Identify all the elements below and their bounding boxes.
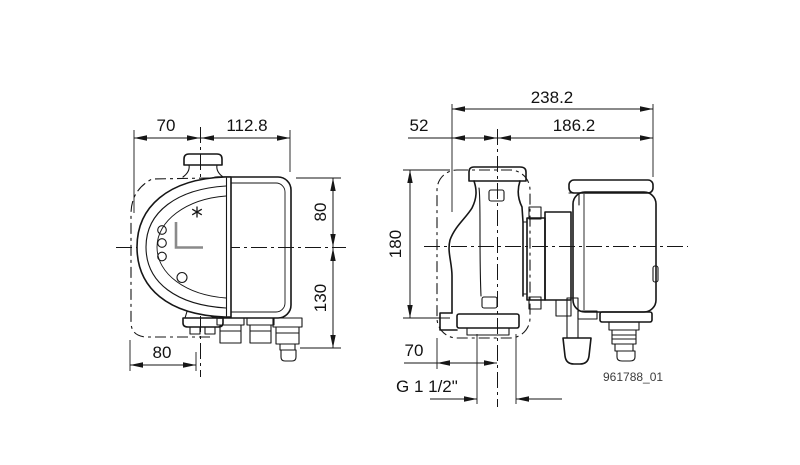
- technical-drawing: 70 112.8 80 130 80: [0, 0, 800, 465]
- front-dim-right: 80 130: [296, 178, 341, 348]
- dim-side-base-depth: 70: [405, 341, 424, 360]
- dim-side-pipe-connection: G 1 1/2": [396, 377, 458, 396]
- dim-side-overall-depth: 238.2: [531, 88, 574, 107]
- side-centerlines: [424, 129, 688, 407]
- side-dim-height: 180: [386, 170, 450, 318]
- front-dim-bottom: 80: [130, 340, 196, 371]
- dim-front-top-right: 112.8: [226, 116, 267, 135]
- dim-side-port-height: 180: [386, 230, 405, 258]
- side-pump-housing: [440, 167, 526, 335]
- dim-side-rear-depth: 186.2: [553, 116, 596, 135]
- side-dim-base: 70: [404, 338, 497, 369]
- front-view: 70 112.8 80 130 80: [116, 116, 346, 377]
- front-top-port: [183, 154, 223, 177]
- front-cable-glands: [217, 318, 302, 361]
- side-power-plug: [563, 298, 597, 364]
- side-cable-gland: [609, 322, 639, 361]
- dim-side-front-depth: 52: [410, 116, 429, 135]
- side-view: 238.2 52 186.2 180 70: [386, 88, 688, 407]
- side-motor-flange: [523, 207, 545, 309]
- dim-front-top-left: 70: [157, 116, 176, 135]
- dim-front-upper-height: 80: [311, 203, 330, 222]
- dim-front-lower-height: 130: [311, 284, 330, 312]
- side-dim-depths: 52 186.2: [408, 116, 653, 138]
- reference-number: 961788_01: [603, 370, 663, 384]
- drawing-page: 70 112.8 80 130 80: [0, 0, 800, 465]
- side-control-box: [569, 180, 658, 322]
- dim-front-bottom-width: 80: [153, 343, 172, 362]
